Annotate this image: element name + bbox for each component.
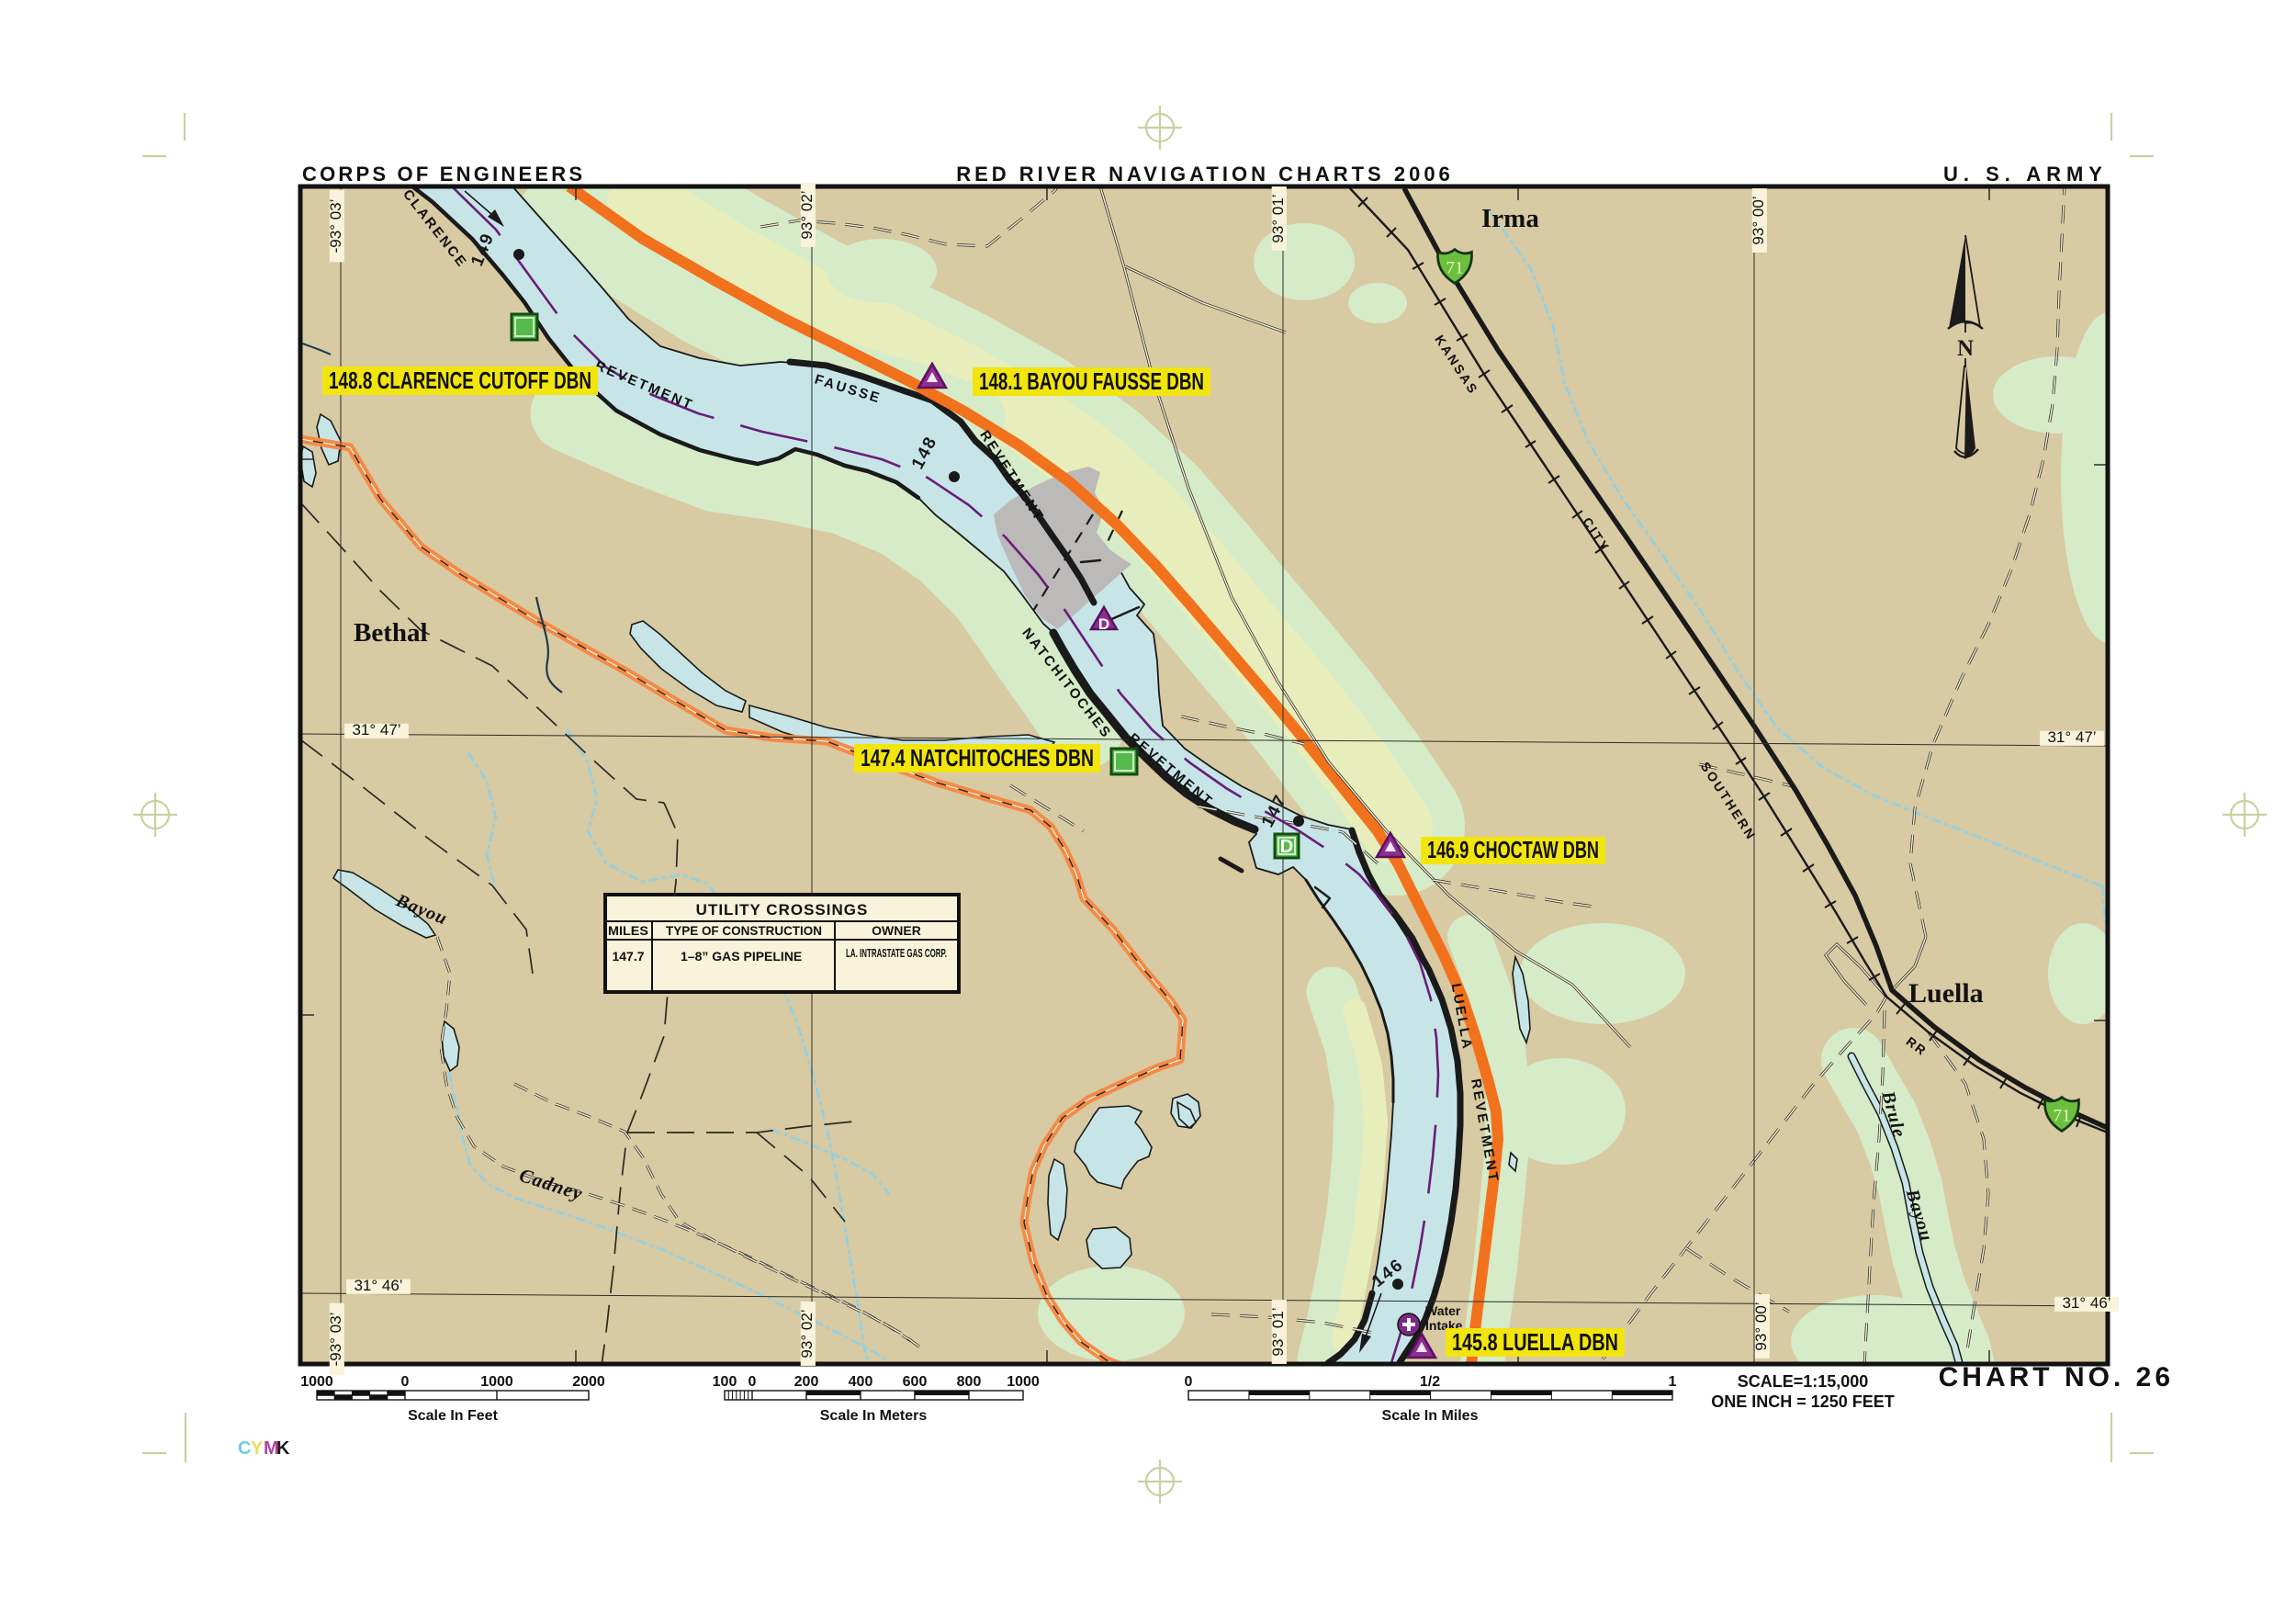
svg-text:1000: 1000 [300, 1374, 333, 1390]
svg-text:Bethal: Bethal [354, 618, 428, 648]
svg-text:1000: 1000 [480, 1374, 513, 1390]
svg-text:93° 01’: 93° 01’ [1269, 1307, 1287, 1356]
svg-text:93° 02’: 93° 02’ [798, 1309, 816, 1358]
svg-text:UTILITY CROSSINGS: UTILITY CROSSINGS [696, 901, 869, 919]
svg-text:93° 01’: 93° 01’ [1269, 194, 1287, 242]
svg-text:LA. INTRASTATE GAS CORP.: LA. INTRASTATE GAS CORP. [846, 946, 947, 960]
svg-text:31° 46’: 31° 46’ [2062, 1294, 2110, 1312]
svg-text:Luella: Luella [1908, 978, 1984, 1009]
svg-text:OWNER: OWNER [872, 923, 921, 938]
svg-text:146.9 CHOCTAW DBN: 146.9 CHOCTAW DBN [1427, 836, 1599, 863]
svg-text:148.1 BAYOU FAUSSE DBN: 148.1 BAYOU FAUSSE DBN [979, 367, 1204, 395]
svg-text:CHART NO. 26: CHART NO. 26 [1939, 1362, 2174, 1392]
svg-text:1000: 1000 [1007, 1374, 1040, 1390]
svg-text:93° 00’: 93° 00’ [1750, 196, 1767, 244]
svg-text:Irma: Irma [1481, 204, 1539, 233]
svg-text:0: 0 [1185, 1374, 1193, 1390]
svg-text:U. S. ARMY: U. S. ARMY [1943, 163, 2108, 186]
svg-text:RED RIVER NAVIGATION CHARTS 20: RED RIVER NAVIGATION CHARTS 2006 [956, 163, 1454, 186]
svg-text:Water: Water [1425, 1303, 1461, 1318]
svg-text:0: 0 [401, 1374, 410, 1390]
svg-text:D: D [1280, 837, 1293, 857]
svg-text:ONE INCH = 1250 FEET: ONE INCH = 1250 FEET [1711, 1392, 1895, 1411]
svg-text:-93° 03’: -93° 03’ [327, 199, 344, 254]
svg-text:1: 1 [1669, 1374, 1677, 1390]
svg-text:31° 47’: 31° 47’ [2047, 728, 2096, 746]
svg-text:TYPE OF CONSTRUCTION: TYPE OF CONSTRUCTION [666, 923, 822, 938]
svg-text:71: 71 [2053, 1106, 2070, 1125]
svg-text:-93° 03’: -93° 03’ [327, 1313, 344, 1367]
svg-text:Scale In Feet: Scale In Feet [408, 1408, 498, 1424]
svg-text:Scale In Meters: Scale In Meters [820, 1408, 928, 1424]
svg-text:147.7: 147.7 [612, 949, 644, 964]
svg-text:0: 0 [748, 1374, 757, 1390]
svg-text:2000: 2000 [572, 1374, 605, 1390]
svg-text:MILES: MILES [608, 923, 648, 938]
svg-text:400: 400 [849, 1374, 873, 1390]
svg-text:71: 71 [1446, 258, 1463, 277]
svg-text:600: 600 [903, 1374, 928, 1390]
svg-text:200: 200 [794, 1374, 819, 1390]
svg-text:N: N [1957, 336, 1974, 361]
svg-text:Y: Y [251, 1438, 264, 1459]
svg-text:CORPS OF ENGINEERS: CORPS OF ENGINEERS [302, 163, 585, 186]
svg-text:SCALE=1:15,000: SCALE=1:15,000 [1738, 1372, 1869, 1391]
svg-text:93° 02’: 93° 02’ [798, 190, 816, 239]
svg-text:145.8 LUELLA DBN: 145.8 LUELLA DBN [1452, 1328, 1618, 1356]
svg-text:100: 100 [713, 1374, 737, 1390]
svg-text:1–8” GAS PIPELINE: 1–8” GAS PIPELINE [681, 949, 802, 964]
svg-text:147.4 NATCHITOCHES DBN: 147.4 NATCHITOCHES DBN [861, 744, 1094, 772]
svg-text:93° 00’: 93° 00’ [1752, 1302, 1770, 1350]
svg-text:1/2: 1/2 [1420, 1374, 1440, 1390]
svg-text:C: C [238, 1438, 251, 1459]
svg-text:Scale In Miles: Scale In Miles [1382, 1408, 1479, 1424]
svg-text:31° 46’: 31° 46’ [354, 1277, 402, 1294]
svg-text:31° 47’: 31° 47’ [352, 721, 400, 738]
svg-text:148.8 CLARENCE CUTOFF DBN: 148.8 CLARENCE CUTOFF DBN [329, 366, 591, 394]
svg-text:K: K [276, 1438, 290, 1459]
svg-text:800: 800 [957, 1374, 982, 1390]
svg-text:D: D [1098, 615, 1109, 633]
